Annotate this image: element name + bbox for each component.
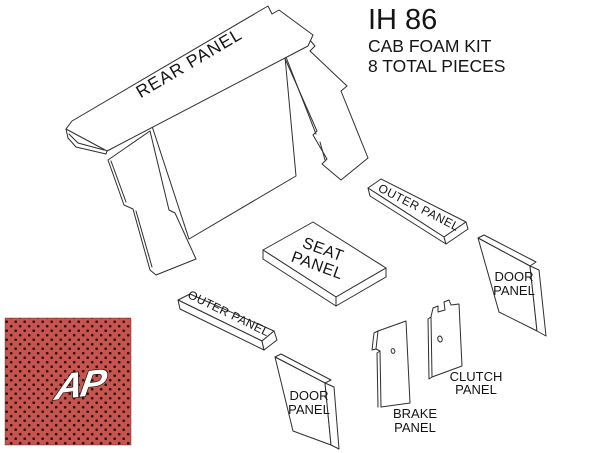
cab-foam-kit-diagram: REAR PANEL OUTER PANEL SEAT PANEL DOOR P…	[0, 0, 600, 453]
seat-panel-shape: SEAT PANEL	[263, 222, 386, 306]
door-panel-lower-shape: DOOR PANEL	[275, 354, 339, 449]
clutch-panel-shape: CLUTCH PANEL	[428, 300, 502, 397]
door-panel-right-label: DOOR PANEL	[493, 269, 535, 298]
kit-name: CAB FOAM KIT	[368, 36, 505, 56]
exploded-view-drawing: REAR PANEL OUTER PANEL SEAT PANEL DOOR P…	[0, 0, 600, 453]
brake-panel-label: BRAKE PANEL	[393, 406, 437, 435]
brake-panel-shape: BRAKE PANEL	[372, 321, 437, 435]
outer-panel-lower-shape: OUTER PANEL	[178, 288, 277, 350]
clutch-panel-label: CLUTCH PANEL	[450, 369, 503, 397]
outer-panel-upper-shape: OUTER PANEL	[368, 179, 468, 244]
svg-text:BRAKE: BRAKE	[393, 406, 437, 421]
svg-text:DOOR: DOOR	[290, 388, 329, 403]
door-panel-right-shape: DOOR PANEL	[478, 235, 546, 336]
piece-count: 8 TOTAL PIECES	[368, 56, 505, 76]
title-block: IH 86 CAB FOAM KIT 8 TOTAL PIECES	[368, 4, 505, 76]
svg-text:DOOR: DOOR	[495, 269, 534, 284]
fabric-swatch: AP	[5, 318, 131, 445]
svg-text:PANEL: PANEL	[288, 402, 330, 417]
model-title: IH 86	[368, 4, 505, 36]
svg-text:PANEL: PANEL	[455, 382, 497, 397]
svg-text:PANEL: PANEL	[394, 420, 436, 435]
door-panel-lower-label: DOOR PANEL	[288, 388, 330, 417]
brake-panel-hole	[391, 348, 396, 354]
svg-text:PANEL: PANEL	[493, 283, 535, 298]
